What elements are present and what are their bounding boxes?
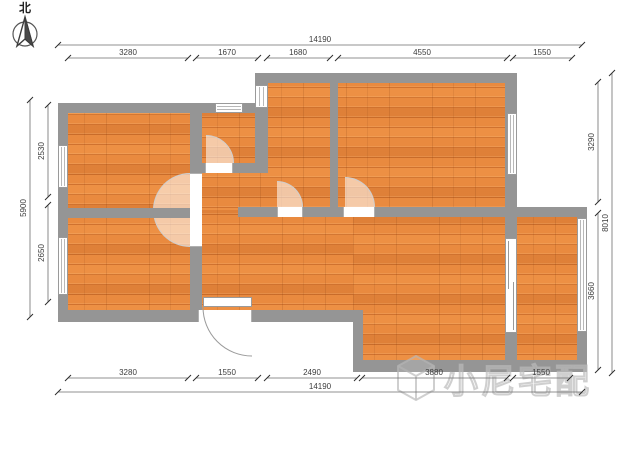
compass-north: 北 <box>8 2 42 55</box>
door-opening-room-a <box>277 207 303 217</box>
dim-bottom-seg1: 3280 <box>119 368 137 377</box>
floor-living-area-lower <box>353 210 512 365</box>
wall-between-left-rooms <box>58 208 190 218</box>
dim-top-seg4: 4550 <box>413 48 431 57</box>
floor-room-bottom-right <box>512 210 582 365</box>
door-opening-left-rooms <box>190 173 202 247</box>
wall-small-room-bottom-right <box>233 163 268 173</box>
window-left-lower <box>58 237 68 295</box>
wall-mid-horizontal-c <box>375 207 505 217</box>
dim-top-seg1: 3280 <box>119 48 137 57</box>
north-arrow-icon <box>9 14 41 50</box>
entry-door-opening <box>198 310 252 322</box>
dim-left-overall: 5900 <box>19 199 28 217</box>
window-left-upper <box>58 145 68 188</box>
dim-bottom-seg3: 2490 <box>303 368 321 377</box>
entry-door-leaf <box>203 297 252 307</box>
dim-bottom-seg2: 1550 <box>218 368 236 377</box>
wall-exterior-bottom-left <box>58 310 198 322</box>
dim-right-seg1: 3290 <box>587 133 596 151</box>
dimension-lines-right <box>598 73 612 373</box>
wall-top-bottom-right-room <box>505 207 587 217</box>
door-opening-room-b <box>343 207 375 217</box>
wall-mid-horizontal-a <box>238 207 277 217</box>
dim-top-seg5: 1550 <box>533 48 551 57</box>
floor-plan: 北 小尼宅配 14190 3280 1670 <box>0 0 640 457</box>
wall-mid-horizontal-b <box>303 207 343 217</box>
dim-left-seg1: 2530 <box>37 142 46 160</box>
wall-between-top-rooms <box>330 83 338 207</box>
window-top-small-room <box>215 103 243 113</box>
dim-top-seg3: 1680 <box>289 48 307 57</box>
dim-right-overall: 8010 <box>601 214 610 232</box>
wall-exterior-top-right <box>255 73 517 83</box>
dim-top-overall: 14190 <box>309 35 332 44</box>
tick-marks-right <box>595 70 615 376</box>
dimension-lines-top <box>58 45 582 58</box>
tick-marks-top <box>55 42 585 61</box>
tick-marks-left <box>27 97 51 320</box>
cube-logo-icon <box>392 352 440 404</box>
dim-bottom-overall: 14190 <box>309 382 332 391</box>
sliding-door-balcony <box>505 238 517 333</box>
wall-small-room-bottom-left <box>190 163 205 173</box>
wall-bottom-middle <box>252 310 363 322</box>
dim-left-seg2: 2650 <box>37 244 46 262</box>
dim-top-seg2: 1670 <box>218 48 236 57</box>
window-jog-wall <box>255 85 268 108</box>
watermark: 小尼宅配 <box>392 350 592 406</box>
watermark-text: 小尼宅配 <box>444 354 592 403</box>
window-right-lower <box>577 218 587 332</box>
dimension-lines-left <box>30 100 48 317</box>
dim-right-seg2: 3660 <box>587 282 596 300</box>
window-right-upper <box>507 113 517 175</box>
door-opening-small-room <box>205 163 233 173</box>
north-label: 北 <box>8 2 42 14</box>
